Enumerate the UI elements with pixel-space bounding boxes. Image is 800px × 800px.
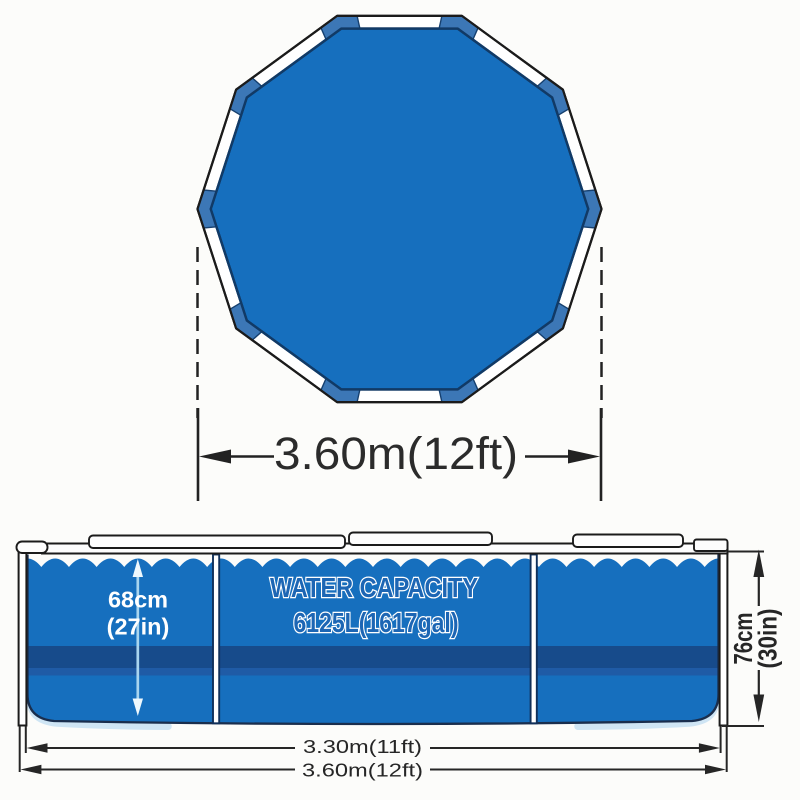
svg-text:(30in): (30in) xyxy=(753,609,783,669)
svg-text:3.60m(12ft): 3.60m(12ft) xyxy=(274,428,518,479)
svg-text:3.30m(11ft): 3.30m(11ft) xyxy=(303,737,422,757)
svg-text:WATER CAPACITY: WATER CAPACITY xyxy=(270,572,478,603)
svg-text:3.60m(12ft): 3.60m(12ft) xyxy=(302,761,423,781)
svg-text:68cm: 68cm xyxy=(108,587,168,613)
svg-text:6125L(1617gal): 6125L(1617gal) xyxy=(294,607,459,638)
svg-text:(27in): (27in) xyxy=(107,614,170,640)
